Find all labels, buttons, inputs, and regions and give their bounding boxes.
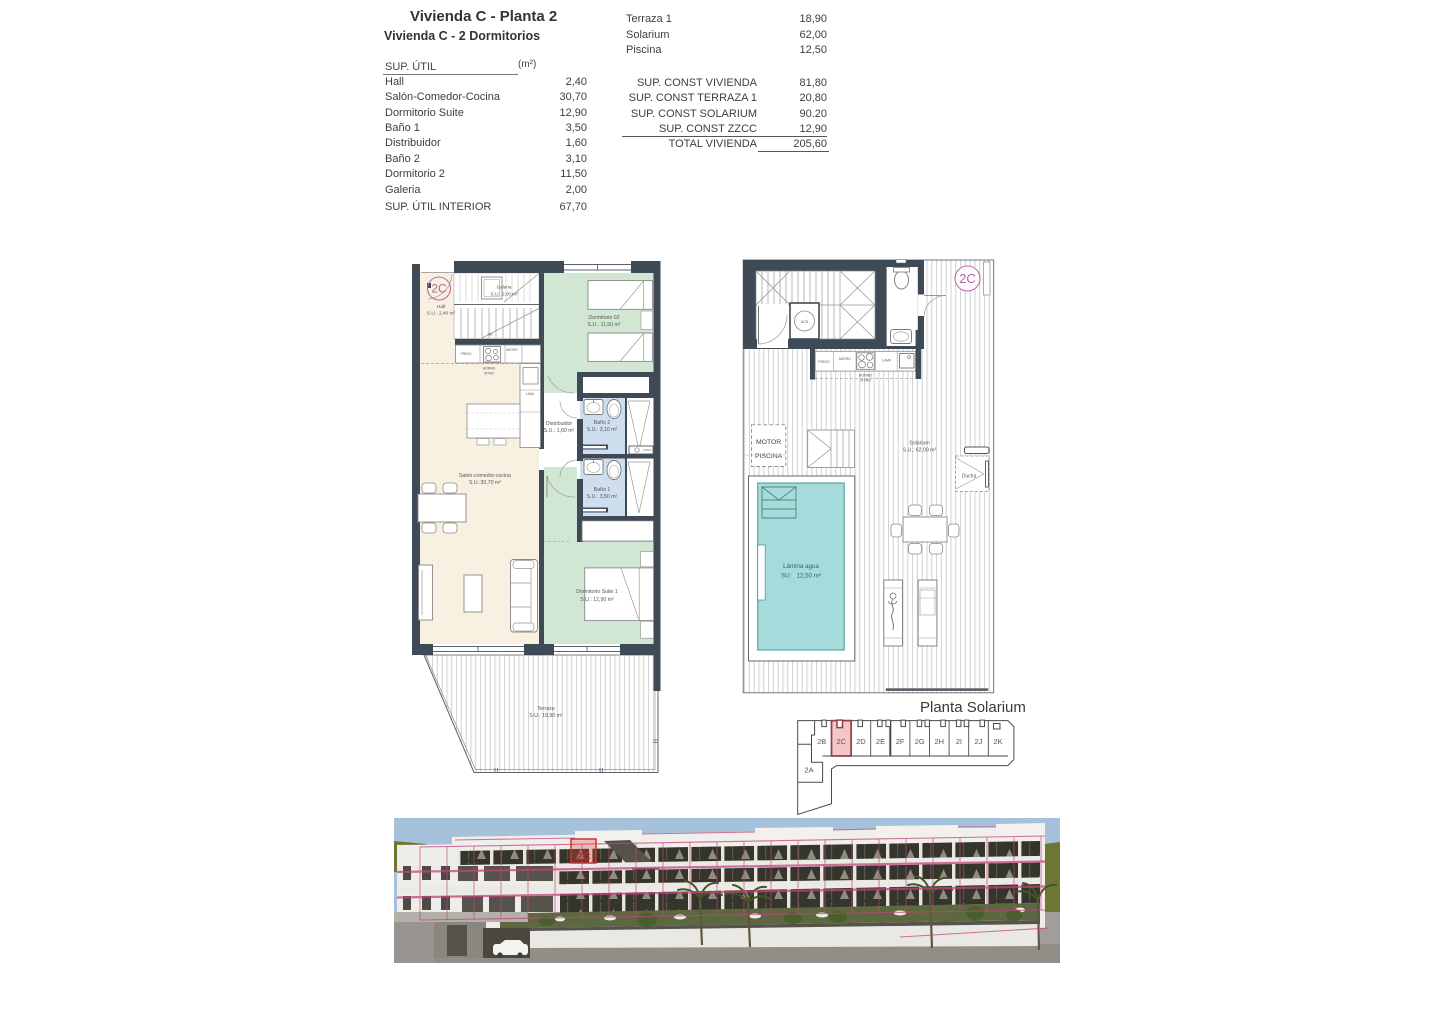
- svg-text:MICRO: MICRO: [839, 357, 851, 361]
- svg-text:CB: CB: [488, 333, 493, 337]
- svg-text:Solarium: Solarium: [909, 441, 929, 447]
- svg-text:ACS: ACS: [801, 320, 809, 324]
- svg-text:2A: 2A: [804, 766, 813, 775]
- svg-text:S.U.: 3,10 m²: S.U.: 3,10 m²: [587, 427, 618, 433]
- svg-text:S.U.: 18,90 m²: S.U.: 18,90 m²: [529, 713, 563, 719]
- svg-text:Distribuidor: Distribuidor: [546, 421, 573, 427]
- svg-text:2C: 2C: [959, 271, 976, 286]
- svg-text:LAVA: LAVA: [882, 359, 891, 363]
- svg-text:S.U.: 62,00 m²: S.U.: 62,00 m²: [903, 448, 937, 454]
- svg-text:S.U.: 1,60 m²: S.U.: 1,60 m²: [544, 428, 575, 434]
- svg-text:LAVA: LAVA: [526, 392, 535, 396]
- svg-text:MICRO: MICRO: [506, 348, 518, 352]
- svg-text:S.U.: 2,40 m²: S.U.: 2,40 m²: [427, 311, 456, 317]
- svg-text:2I: 2I: [956, 737, 962, 746]
- svg-text:VITRO: VITRO: [860, 379, 871, 383]
- svg-text:2C: 2C: [576, 851, 590, 863]
- svg-text:2K: 2K: [994, 737, 1003, 746]
- svg-text:Baño 1: Baño 1: [594, 487, 611, 493]
- svg-text:S.U.:30,70 m²: S.U.:30,70 m²: [469, 480, 501, 486]
- svg-text:HORNO: HORNO: [483, 367, 496, 371]
- svg-text:2B: 2B: [817, 737, 826, 746]
- svg-text:2G: 2G: [915, 737, 925, 746]
- svg-text:2F: 2F: [896, 737, 905, 746]
- svg-text:2H: 2H: [935, 737, 945, 746]
- svg-text:2C: 2C: [837, 737, 847, 746]
- svg-text:2C: 2C: [431, 282, 447, 296]
- svg-text:MOTOR: MOTOR: [756, 439, 781, 446]
- svg-text:FRIGO: FRIGO: [461, 352, 472, 356]
- svg-text:Galeria: Galeria: [497, 285, 512, 290]
- svg-text:Baño 2: Baño 2: [594, 420, 611, 426]
- svg-text:VITRO: VITRO: [484, 372, 495, 376]
- svg-text:Dormitorio Suite 1: Dormitorio Suite 1: [576, 589, 618, 595]
- svg-text:Terraza: Terraza: [537, 706, 554, 712]
- svg-text:2J: 2J: [975, 737, 983, 746]
- svg-text:Ducha: Ducha: [962, 474, 977, 480]
- svg-text:HORNO: HORNO: [859, 374, 873, 378]
- svg-text:Hall: Hall: [437, 304, 445, 310]
- svg-text:2E: 2E: [876, 737, 885, 746]
- svg-text:S.U.: 3,50 m²: S.U.: 3,50 m²: [587, 494, 618, 500]
- svg-text:Dormitorio 02: Dormitorio 02: [588, 315, 619, 321]
- svg-text:S.U.: 12,90 m²: S.U.: 12,90 m²: [580, 597, 614, 603]
- svg-text:S.U.: 11,50 m²: S.U.: 11,50 m²: [587, 322, 620, 328]
- svg-text:2D: 2D: [856, 737, 866, 746]
- svg-text:S.U.: 2,00 m²: S.U.: 2,00 m²: [490, 292, 518, 297]
- svg-text:PISCINA: PISCINA: [755, 453, 783, 460]
- svg-text:Salón-comedor-cocina: Salón-comedor-cocina: [459, 473, 511, 479]
- svg-text:FRIGO: FRIGO: [818, 360, 830, 364]
- svg-text:Lámina agua: Lámina agua: [783, 563, 819, 570]
- svg-text:SU: 12,50 m²: SU: 12,50 m²: [781, 573, 821, 580]
